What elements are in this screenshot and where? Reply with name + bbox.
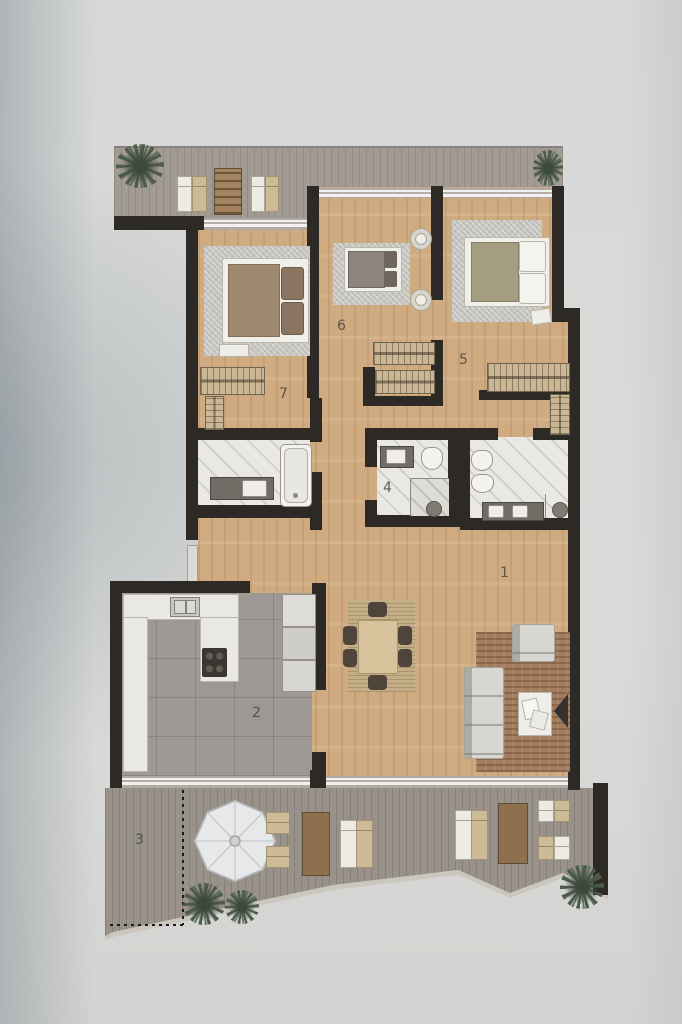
appliance-column [282, 660, 316, 692]
wall [110, 593, 122, 788]
palm-plant-icon [533, 150, 563, 186]
sun-lounger-icon [265, 176, 279, 212]
bed-duvet [228, 264, 280, 337]
parasol-icon [193, 799, 277, 883]
shower-head-icon [426, 501, 442, 517]
sun-lounger-icon [356, 820, 373, 868]
outdoor-table-icon [498, 803, 528, 864]
toilet-icon [471, 450, 493, 471]
wall [363, 367, 375, 396]
wall [365, 515, 460, 527]
washbasin-icon [386, 449, 406, 464]
dining-chairs-icon [343, 626, 357, 645]
wardrobe-icon [200, 367, 265, 395]
room-label-bedroom6: 6 [337, 318, 346, 334]
armchair-icon [512, 624, 555, 662]
toilet-icon [421, 447, 443, 470]
sink-bowl [186, 600, 196, 614]
bed-duvet [348, 251, 385, 288]
window-bedroom5 [443, 188, 552, 198]
washbasin-icon [488, 505, 504, 518]
dining-chairs-icon [368, 602, 387, 617]
wall [552, 186, 564, 308]
kitchen-counter-icon [123, 617, 148, 772]
wall [110, 581, 250, 593]
boundary-dotted-icon [110, 924, 184, 926]
wall [448, 435, 470, 527]
wall [363, 396, 443, 406]
bed-pillow [519, 241, 546, 272]
bed-duvet [471, 242, 519, 302]
seat-cushion-icon [266, 846, 290, 868]
outdoor-table-icon [302, 812, 330, 876]
window-kitchen-terrace [117, 776, 310, 788]
window-living-terrace [326, 776, 568, 788]
bidet-icon [471, 474, 494, 493]
seat-cushion-icon [538, 800, 554, 822]
washbasin-icon [512, 505, 528, 518]
sun-lounger-icon [340, 820, 357, 868]
seat-cushion-icon [554, 800, 570, 822]
room-label-living: 1 [500, 565, 509, 581]
parasol-svg [193, 799, 277, 883]
sun-lounger-icon [251, 176, 265, 212]
bed-pillow [281, 267, 304, 300]
window-bedroom6 [319, 188, 431, 198]
palm-plant-icon [560, 865, 604, 909]
background-patch [564, 186, 572, 322]
tv-icon [554, 694, 568, 728]
sun-lounger-icon [471, 810, 488, 860]
sofa-icon [464, 667, 504, 759]
dining-chairs-icon [398, 626, 412, 645]
pouf-icon [410, 289, 432, 311]
wardrobe-icon [550, 394, 570, 435]
wall [310, 770, 326, 788]
nightstand-icon [530, 308, 552, 326]
wall [186, 228, 198, 540]
entry-door [187, 545, 198, 583]
window-bedroom7 [204, 218, 307, 230]
floor-plan-photo: 1 2 3 4 5 6 7 [0, 0, 682, 1024]
kitchen-sink-icon [170, 597, 200, 617]
sun-lounger-icon [177, 176, 192, 212]
dining-chairs-icon [343, 649, 357, 667]
outdoor-table-icon [214, 168, 242, 215]
room-label-kitchen: 2 [252, 705, 261, 721]
seat-cushion-icon [266, 812, 290, 834]
wall [310, 398, 322, 442]
dining-table-icon [358, 620, 398, 674]
shower-glass-line [545, 494, 546, 518]
wall [552, 308, 580, 322]
wall [365, 428, 498, 440]
palm-plant-icon [225, 890, 259, 924]
bathtub-icon [280, 444, 312, 507]
fridge-icon [282, 594, 316, 627]
seat-cushion-icon [554, 836, 570, 860]
palm-plant-icon [116, 144, 164, 188]
room-label-bathroom: 4 [383, 480, 392, 496]
bed-pillow [519, 273, 546, 304]
wall [431, 186, 443, 300]
room-label-terrace: 3 [135, 832, 144, 848]
pouf-icon [410, 228, 432, 250]
room-label-bedroom5: 5 [459, 352, 468, 368]
bed-pillow [281, 302, 304, 335]
wardrobe-icon [375, 370, 435, 394]
bathtub-drain [293, 493, 298, 498]
wardrobe-icon [487, 363, 570, 392]
seat-cushion-icon [538, 836, 554, 860]
room-label-bedroom7: 7 [279, 386, 288, 402]
oven-icon [282, 627, 316, 660]
dining-chairs-icon [368, 675, 387, 690]
bed-pillow [384, 271, 397, 287]
shower-head-icon [552, 502, 568, 518]
sun-lounger-icon [192, 176, 207, 212]
dining-chairs-icon [398, 649, 412, 667]
magazine [529, 709, 549, 730]
sink-bowl [174, 600, 186, 614]
cooktop-icon [202, 648, 227, 677]
sun-lounger-icon [455, 810, 472, 860]
palm-plant-icon [183, 883, 225, 925]
bed-bench-icon [219, 344, 249, 357]
bed-pillow [384, 251, 397, 268]
coffee-table-icon [518, 692, 552, 736]
wardrobe-icon [373, 342, 435, 365]
washbasin-icon [242, 480, 267, 497]
wardrobe-icon [205, 396, 224, 430]
